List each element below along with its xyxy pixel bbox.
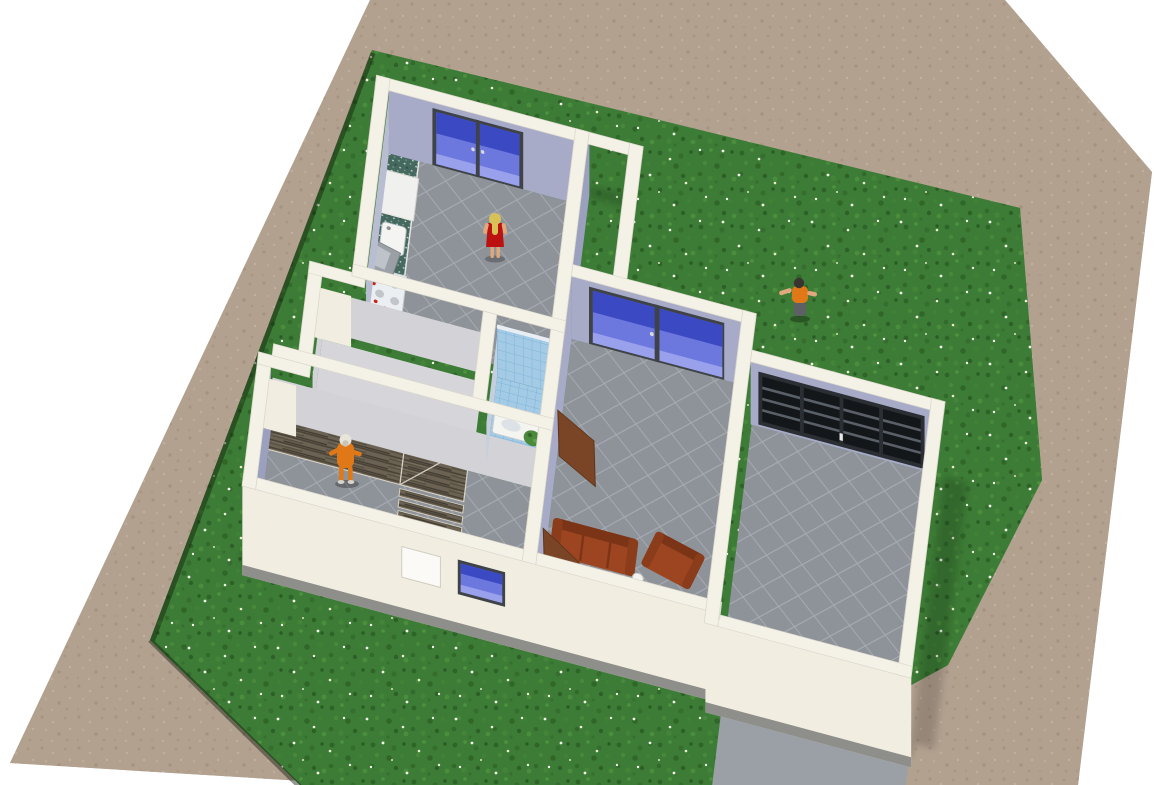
boot	[338, 480, 345, 484]
render-viewport	[0, 0, 1170, 785]
dark-hair	[794, 278, 804, 288]
person-shadow	[790, 316, 810, 323]
boot	[348, 480, 355, 484]
scene-3d	[0, 0, 1170, 785]
blonde-hair-long	[492, 219, 498, 235]
orange-shirt	[792, 286, 808, 303]
garage-door-handle	[840, 433, 843, 441]
leg-orange	[348, 466, 353, 481]
gray-pants	[794, 301, 806, 316]
person-shadow	[485, 256, 505, 263]
cap-brim	[342, 440, 348, 446]
leg-orange	[339, 466, 344, 481]
